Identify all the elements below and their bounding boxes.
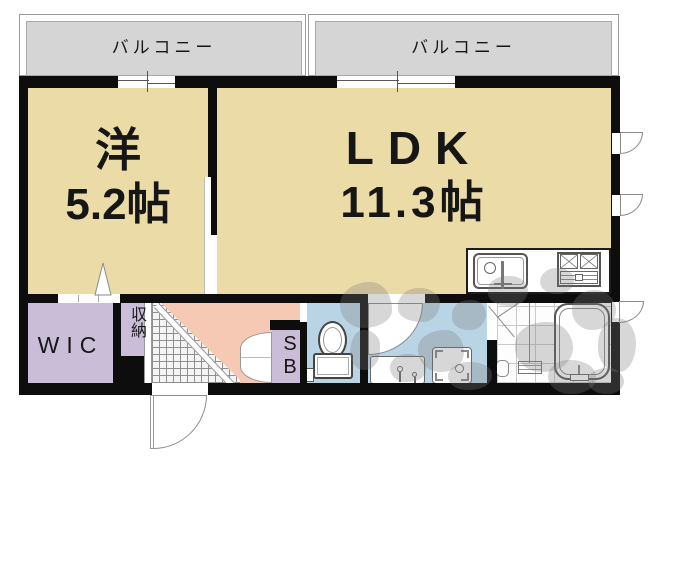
watermark-blob bbox=[448, 362, 492, 390]
watermark-blob bbox=[340, 282, 392, 328]
window-sash-line bbox=[147, 83, 175, 84]
bedroom-door-swing bbox=[94, 262, 112, 296]
wall-top bbox=[19, 76, 620, 88]
watermark-blob bbox=[390, 354, 426, 382]
bath-door-opening bbox=[487, 303, 497, 340]
balcony-left-label: バルコニー bbox=[27, 33, 301, 58]
toilet-door-seam bbox=[241, 357, 271, 358]
ldk-area-label: 11.3帖 bbox=[217, 180, 611, 226]
entrance-door-leaf bbox=[150, 395, 154, 449]
right-window-swing bbox=[620, 194, 643, 216]
window-sash-line bbox=[397, 83, 455, 84]
right-window-swing bbox=[620, 132, 643, 154]
stove-knob-icon bbox=[575, 274, 583, 281]
shoe-box: SB bbox=[272, 330, 300, 383]
balcony-right: バルコニー bbox=[315, 21, 612, 76]
pan-corner bbox=[435, 373, 443, 381]
right-wall-opening bbox=[612, 133, 620, 154]
sink-drain-icon bbox=[484, 262, 496, 274]
watermark-blob bbox=[350, 330, 380, 370]
window-center-tick bbox=[397, 71, 398, 92]
toilet-bowl-inner bbox=[323, 327, 342, 353]
toilet-tank-inner bbox=[317, 357, 349, 375]
watermark-blob bbox=[488, 276, 528, 306]
window-sash-line bbox=[337, 80, 399, 81]
balcony-right-label: バルコニー bbox=[316, 33, 611, 58]
entrance-door-swing bbox=[153, 395, 207, 449]
stove-burner-icon bbox=[560, 254, 578, 269]
balcony-left: バルコニー bbox=[26, 21, 302, 76]
door-panel-line bbox=[98, 295, 99, 302]
wall-wic-storage bbox=[113, 303, 121, 395]
bedroom-area-label: 5.2帖 bbox=[14, 182, 222, 228]
watermark-blob bbox=[540, 268, 574, 294]
storage-label: 収納 bbox=[124, 306, 148, 338]
bedroom-name-label: 洋 bbox=[28, 126, 208, 174]
right-wall-opening bbox=[612, 195, 620, 216]
window-sash-line bbox=[118, 80, 149, 81]
entrance-threshold bbox=[152, 383, 208, 395]
watermark-blob bbox=[598, 318, 636, 372]
floor-plan: バルコニー バルコニー bbox=[0, 0, 690, 575]
ldk-window bbox=[337, 76, 455, 88]
window-center-tick bbox=[147, 71, 148, 92]
wic-label: WIC bbox=[28, 332, 113, 359]
shoe-box-label: SB bbox=[278, 333, 301, 379]
watermark-blob bbox=[452, 300, 486, 330]
stove-burner-icon bbox=[580, 254, 598, 269]
wall-left bbox=[19, 76, 28, 395]
sb-header-wall bbox=[270, 320, 300, 330]
wall-bottom bbox=[19, 383, 620, 395]
wall-bedroom-ldk bbox=[208, 88, 217, 177]
door-panel-line bbox=[78, 295, 79, 302]
bath-stool-icon bbox=[496, 360, 509, 377]
wall-under-storage bbox=[121, 356, 144, 395]
watermark-blob bbox=[398, 288, 440, 322]
watermark-blob bbox=[588, 368, 624, 394]
wall-hall-toilet bbox=[300, 322, 307, 383]
ldk-name-label: LDK bbox=[217, 124, 611, 172]
